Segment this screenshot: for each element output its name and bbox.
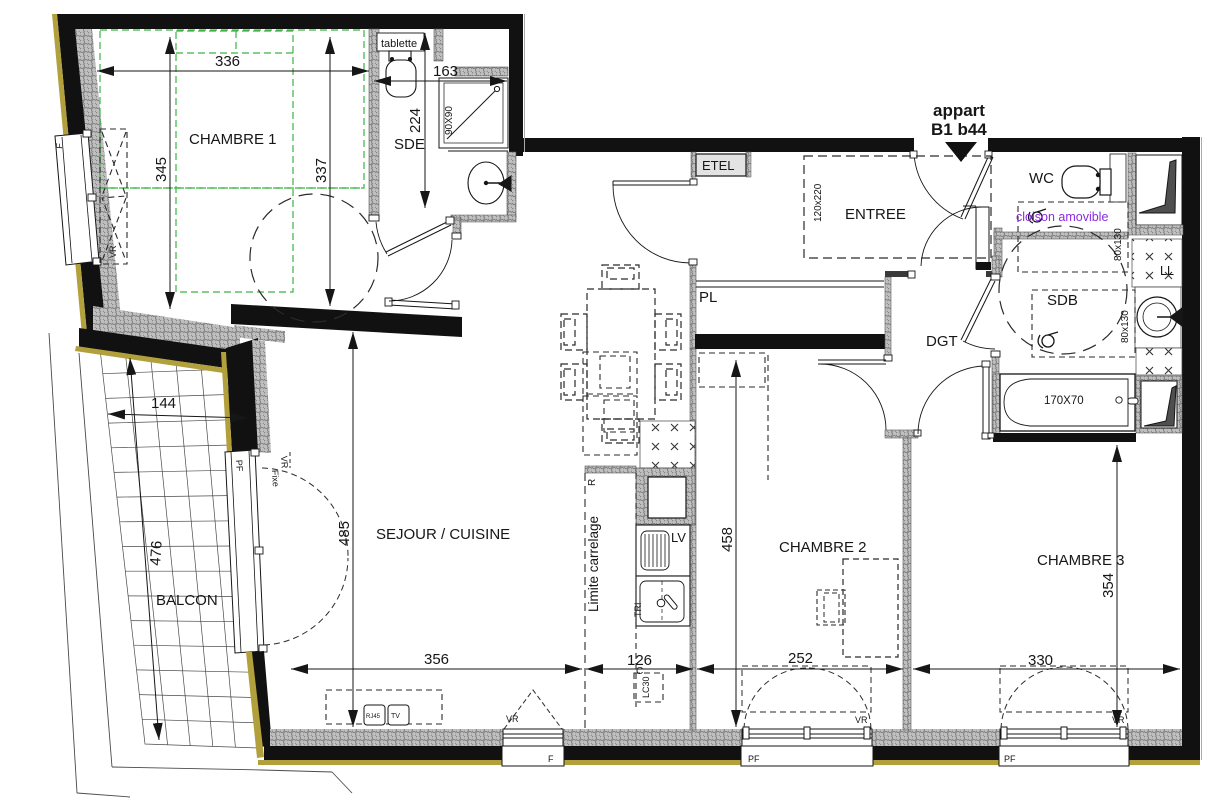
svg-text:224: 224 xyxy=(407,108,424,133)
svg-text:DGT: DGT xyxy=(926,333,958,350)
svg-text:458: 458 xyxy=(719,527,736,552)
svg-text:PF: PF xyxy=(1004,754,1016,764)
svg-text:SDE: SDE xyxy=(394,136,425,153)
svg-text:330: 330 xyxy=(1028,652,1053,669)
svg-text:RJ45: RJ45 xyxy=(366,714,381,720)
svg-text:336: 336 xyxy=(215,53,240,70)
svg-text:BALCON: BALCON xyxy=(156,592,218,609)
svg-text:SEJOUR / CUISINE: SEJOUR / CUISINE xyxy=(376,526,510,543)
svg-text:LV: LV xyxy=(671,530,686,545)
svg-text:VR: VR xyxy=(279,456,290,470)
svg-text:120x220: 120x220 xyxy=(813,183,824,222)
svg-text:Fixe: Fixe xyxy=(270,470,281,488)
svg-text:PL: PL xyxy=(699,289,717,306)
svg-text:tablette: tablette xyxy=(381,38,417,50)
svg-text:356: 356 xyxy=(424,651,449,668)
svg-text:SDB: SDB xyxy=(1047,292,1078,309)
svg-text:F: F xyxy=(548,754,554,764)
svg-text:PF: PF xyxy=(748,754,760,764)
svg-text:485: 485 xyxy=(336,521,353,546)
svg-text:354: 354 xyxy=(1100,573,1117,598)
svg-text:144: 144 xyxy=(151,395,176,412)
svg-text:90X90: 90X90 xyxy=(444,106,455,135)
svg-text:cloison amovible: cloison amovible xyxy=(1016,210,1108,224)
svg-text:VR: VR xyxy=(506,714,519,724)
svg-text:345: 345 xyxy=(153,157,170,182)
svg-text:B1 b44: B1 b44 xyxy=(931,120,987,139)
svg-text:ENTREE: ENTREE xyxy=(845,206,906,223)
svg-text:LL: LL xyxy=(1160,264,1174,278)
svg-text:R: R xyxy=(587,479,598,486)
svg-text:476: 476 xyxy=(147,540,166,566)
svg-text:252: 252 xyxy=(788,650,813,667)
svg-text:C: C xyxy=(636,666,643,677)
svg-text:337: 337 xyxy=(313,158,330,183)
svg-text:PF: PF xyxy=(234,460,245,473)
svg-text:WC: WC xyxy=(1029,170,1054,187)
svg-text:163: 163 xyxy=(433,63,458,80)
svg-text:VR: VR xyxy=(1112,715,1125,725)
svg-text:appart: appart xyxy=(933,101,985,120)
svg-text:Limite carrelage: Limite carrelage xyxy=(586,516,601,612)
svg-text:CHAMBRE 2: CHAMBRE 2 xyxy=(779,539,867,556)
svg-text:LC30: LC30 xyxy=(641,676,651,698)
svg-text:80x130: 80x130 xyxy=(1113,228,1124,261)
svg-text:CHAMBRE 3: CHAMBRE 3 xyxy=(1037,552,1125,569)
svg-text:80x130: 80x130 xyxy=(1120,310,1131,343)
svg-text:VR: VR xyxy=(108,245,118,258)
svg-text:ETEL: ETEL xyxy=(702,158,735,173)
svg-text:CHAMBRE 1: CHAMBRE 1 xyxy=(189,131,277,148)
svg-text:170X70: 170X70 xyxy=(1044,395,1084,407)
svg-text:VR: VR xyxy=(855,715,868,725)
svg-text:TV: TV xyxy=(391,713,400,720)
svg-text:TRI: TRI xyxy=(633,603,643,618)
